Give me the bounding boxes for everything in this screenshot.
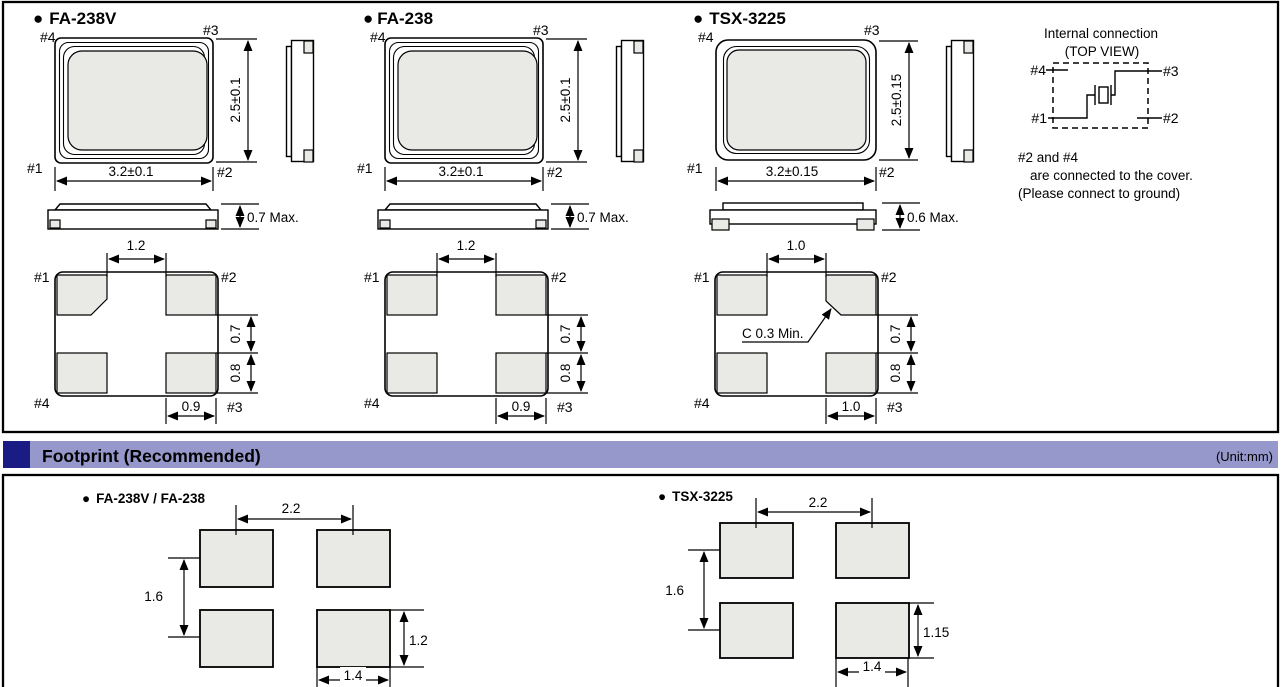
pitch-y-label: 1.6 bbox=[665, 583, 684, 598]
pitch-y-dimension: 1.6 bbox=[665, 550, 720, 630]
thickness-dimension: 0.6 Max. bbox=[882, 203, 959, 230]
pad-top-dim-label: 1.2 bbox=[457, 238, 476, 253]
pad3 bbox=[496, 353, 546, 393]
package-column-fa238: ●FA-238 #4 #3 #1 #2 3.2±0.1 2.5±0.1 bbox=[357, 9, 644, 424]
footprint-tsx3225: ●TSX-3225 2.2 1.6 1.15 1.4 bbox=[658, 489, 949, 687]
thickness-dim-label: 0.6 Max. bbox=[907, 210, 959, 225]
pad-spacing-dimension: 1.0 bbox=[767, 238, 826, 277]
pitch-y-label: 1.6 bbox=[144, 589, 163, 604]
top-view-subtitle: (TOP VIEW) bbox=[1065, 44, 1140, 59]
thickness-dim-label: 0.7 Max. bbox=[247, 210, 299, 225]
pin2-label: #2 bbox=[547, 164, 563, 180]
footprint-pad bbox=[200, 610, 273, 667]
footprint-name: TSX-3225 bbox=[672, 489, 733, 504]
bullet-icon: ● bbox=[693, 9, 703, 28]
bullet-icon: ● bbox=[33, 9, 43, 28]
footprint-name: FA-238V / FA-238 bbox=[96, 491, 205, 506]
package-title: ●FA-238 bbox=[363, 9, 433, 28]
pin2-label: #2 bbox=[879, 164, 895, 180]
pin1-label: #1 bbox=[364, 269, 380, 285]
pad-height-dim-label: 0.8 bbox=[558, 364, 573, 383]
pad-width-dimension: 0.9 bbox=[496, 398, 546, 424]
side-view bbox=[947, 41, 974, 163]
side-profile: 0.7 Max. bbox=[48, 204, 299, 229]
pad3 bbox=[166, 353, 216, 393]
pin4-label: #4 bbox=[370, 29, 386, 45]
pad-width-dim-label: 0.9 bbox=[512, 399, 531, 414]
footprint-pad bbox=[720, 523, 793, 578]
pin1-label: #1 bbox=[1031, 110, 1047, 126]
footprint-pad bbox=[317, 610, 390, 667]
datasheet-drawing: ●FA-238V #4 #3 #1 #2 3.2±0.1 2.5±0.1 bbox=[0, 0, 1281, 687]
pad3 bbox=[826, 353, 876, 393]
package-column-fa238v: ●FA-238V #4 #3 #1 #2 3.2±0.1 2.5±0.1 bbox=[27, 9, 314, 424]
pad-height-dim-label: 0.8 bbox=[228, 364, 243, 383]
pin1-label: #1 bbox=[357, 160, 373, 176]
pin1-label: #1 bbox=[34, 269, 50, 285]
top-view: #4 #3 #1 #2 3.2±0.15 2.5±0.15 bbox=[687, 22, 918, 191]
pad-gap-dim-label: 0.7 bbox=[228, 325, 243, 344]
bullet-icon: ● bbox=[363, 9, 373, 28]
pad-gap-dim-label: 0.7 bbox=[888, 325, 903, 344]
side-view bbox=[287, 41, 314, 163]
pad2 bbox=[166, 275, 216, 315]
cover-note-line3: (Please connect to ground) bbox=[1018, 186, 1180, 201]
package-title: ●FA-238V bbox=[33, 9, 117, 28]
footprint-section-frame bbox=[3, 475, 1278, 687]
pin2-label: #2 bbox=[1163, 110, 1179, 126]
side-profile: 0.7 Max. bbox=[378, 204, 629, 229]
pad2 bbox=[496, 275, 546, 315]
width-dimension: 3.2±0.1 bbox=[385, 164, 543, 191]
pad-width-label: 1.4 bbox=[344, 668, 363, 683]
pin2-label: #2 bbox=[221, 269, 237, 285]
pad-height-dimension: 1.15 bbox=[908, 603, 949, 658]
pad1 bbox=[387, 275, 437, 315]
height-dimension: 2.5±0.15 bbox=[879, 41, 918, 160]
footprint-pad bbox=[200, 530, 273, 587]
pitch-x-label: 2.2 bbox=[809, 495, 828, 510]
footprint-title: ●FA-238V / FA-238 bbox=[82, 491, 205, 506]
pad-width-dimension: 1.0 bbox=[826, 398, 876, 424]
pin3-label: #3 bbox=[227, 399, 243, 415]
pad-spacing-dimension: 1.2 bbox=[107, 238, 166, 277]
pin4-label: #4 bbox=[34, 395, 50, 411]
pad-width-dimension: 1.4 bbox=[317, 667, 390, 687]
width-dim-label: 3.2±0.15 bbox=[766, 164, 818, 179]
pad4 bbox=[57, 353, 107, 393]
width-dimension: 3.2±0.1 bbox=[55, 164, 213, 191]
pin2-label: #2 bbox=[551, 269, 567, 285]
cover-note-line2: are connected to the cover. bbox=[1030, 168, 1193, 183]
package-title: ●TSX-3225 bbox=[693, 9, 786, 28]
top-view: #4 #3 #1 #2 3.2±0.1 2.5±0.1 bbox=[357, 22, 587, 191]
package-name: TSX-3225 bbox=[709, 9, 786, 28]
pin3-label: #3 bbox=[1163, 63, 1179, 79]
bullet-icon: ● bbox=[82, 491, 90, 506]
pad1 bbox=[717, 275, 767, 315]
pad-height-label: 1.15 bbox=[923, 625, 949, 640]
footprint-title: ●TSX-3225 bbox=[658, 489, 733, 504]
pin2-label: #2 bbox=[217, 164, 233, 180]
internal-connection: Internal connection (TOP VIEW) #4 #3 #1 … bbox=[1018, 26, 1193, 201]
pitch-y-dimension: 1.6 bbox=[144, 558, 200, 637]
height-dimension: 2.5±0.1 bbox=[546, 39, 587, 162]
pin3-label: #3 bbox=[203, 22, 219, 38]
internal-connection-title: Internal connection bbox=[1044, 26, 1158, 41]
pin1-label: #1 bbox=[694, 269, 710, 285]
pin4-label: #4 bbox=[40, 29, 56, 45]
footprint-fa238: ●FA-238V / FA-238 2.2 1.6 1.2 1.4 bbox=[82, 491, 428, 687]
thickness-dim-label: 0.7 Max. bbox=[577, 210, 629, 225]
width-dim-label: 3.2±0.1 bbox=[109, 164, 154, 179]
pad-gap-dim-label: 0.7 bbox=[558, 325, 573, 344]
pad4 bbox=[387, 353, 437, 393]
pitch-x-label: 2.2 bbox=[282, 501, 301, 516]
package-column-tsx3225: ●TSX-3225 #4 #3 #1 #2 3.2±0.15 2.5±0.15 bbox=[687, 9, 974, 424]
pad-gap-dimension: 0.7 0.8 bbox=[216, 315, 258, 393]
height-dimension: 2.5±0.1 bbox=[216, 39, 257, 162]
pin1-label: #1 bbox=[27, 160, 43, 176]
pad-width-dim-label: 0.9 bbox=[182, 399, 201, 414]
pin4-label: #4 bbox=[694, 395, 710, 411]
bullet-icon: ● bbox=[658, 489, 666, 504]
bottom-view: #1 #2 #4 #3 1.2 0.7 0.8 0.9 bbox=[34, 238, 258, 424]
pad-width-label: 1.4 bbox=[863, 659, 882, 674]
package-name: FA-238V bbox=[49, 9, 117, 28]
pad-top-dim-label: 1.2 bbox=[127, 238, 146, 253]
section-band-square bbox=[3, 441, 30, 468]
pin2-label: #2 bbox=[881, 269, 897, 285]
pad-width-dimension: 0.9 bbox=[166, 398, 216, 424]
pin3-label: #3 bbox=[557, 399, 573, 415]
bottom-view: #1 #2 #4 #3 1.2 0.7 0.8 0.9 bbox=[364, 238, 588, 424]
pad-width-dim-label: 1.0 bbox=[842, 399, 861, 414]
pin3-label: #3 bbox=[887, 399, 903, 415]
crystal-circuit bbox=[1046, 70, 1162, 118]
footprint-pad bbox=[836, 523, 909, 578]
pin1-label: #1 bbox=[687, 160, 703, 176]
thickness-dimension: 0.7 Max. bbox=[551, 204, 629, 229]
width-dimension: 3.2±0.15 bbox=[716, 164, 876, 191]
chamfer-note-label: C 0.3 Min. bbox=[742, 326, 804, 341]
side-view bbox=[617, 41, 644, 163]
pad-height-label: 1.2 bbox=[409, 633, 428, 648]
pad-height-dimension: 1.2 bbox=[390, 610, 428, 667]
thickness-dimension: 0.7 Max. bbox=[221, 204, 299, 229]
pad-gap-dimension: 0.7 0.8 bbox=[876, 315, 918, 393]
pad-top-dim-label: 1.0 bbox=[787, 238, 806, 253]
footprint-pad bbox=[720, 603, 793, 658]
pad-width-dimension: 1.4 bbox=[836, 658, 908, 687]
side-profile: 0.6 Max. bbox=[710, 203, 959, 230]
footprint-pad bbox=[836, 603, 909, 658]
datasheet-page: ●FA-238V #4 #3 #1 #2 3.2±0.1 2.5±0.1 bbox=[0, 0, 1281, 687]
width-dim-label: 3.2±0.1 bbox=[439, 164, 484, 179]
pin4-label: #4 bbox=[364, 395, 380, 411]
top-view: #4 #3 #1 #2 3.2±0.1 2.5±0.1 bbox=[27, 22, 257, 191]
pin4-label: #4 bbox=[1030, 62, 1046, 78]
bottom-view: #1 #2 #4 #3 C 0.3 Min. 1.0 0.7 0.8 bbox=[694, 238, 918, 424]
height-dim-label: 2.5±0.1 bbox=[558, 78, 573, 123]
pin3-label: #3 bbox=[533, 22, 549, 38]
pin4-label: #4 bbox=[698, 29, 714, 45]
footprint-pad bbox=[317, 530, 390, 587]
height-dim-label: 2.5±0.15 bbox=[889, 74, 904, 126]
height-dim-label: 2.5±0.1 bbox=[228, 78, 243, 123]
pad-spacing-dimension: 1.2 bbox=[437, 238, 496, 277]
crystal-icon bbox=[1099, 87, 1108, 103]
footprint-section-header: Footprint (Recommended) (Unit:mm) bbox=[3, 441, 1278, 468]
package-name: FA-238 bbox=[377, 9, 433, 28]
pad-height-dim-label: 0.8 bbox=[888, 364, 903, 383]
pad-gap-dimension: 0.7 0.8 bbox=[546, 315, 588, 393]
unit-label: (Unit:mm) bbox=[1216, 449, 1273, 464]
cover-note-line1: #2 and #4 bbox=[1018, 150, 1079, 165]
pad4 bbox=[717, 353, 767, 393]
pin3-label: #3 bbox=[864, 22, 880, 38]
section-title: Footprint (Recommended) bbox=[42, 446, 261, 466]
